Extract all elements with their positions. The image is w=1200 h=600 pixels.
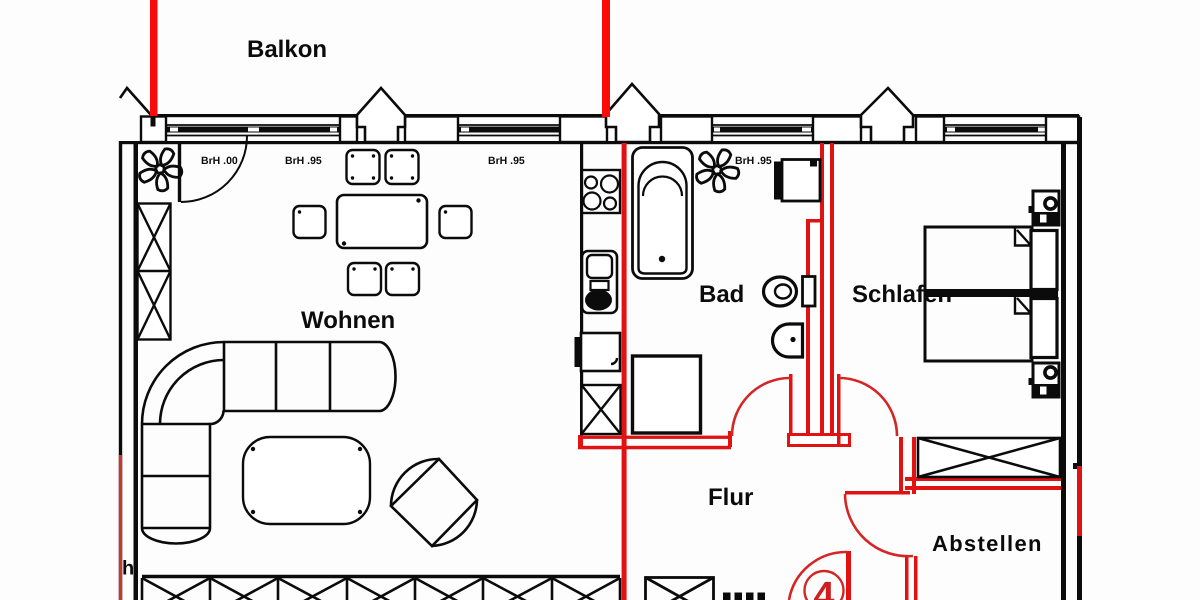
svg-text:Abstellen: Abstellen [932,531,1043,556]
svg-text:4: 4 [813,575,834,600]
svg-text:BrH .00: BrH .00 [201,155,238,167]
svg-text:BrH .95: BrH .95 [285,155,322,167]
svg-text:h: h [122,558,134,580]
svg-text:Bad: Bad [699,281,744,308]
svg-text:BrH .95: BrH .95 [735,155,772,167]
svg-text:Balkon: Balkon [247,36,327,63]
svg-text:Wohnen: Wohnen [301,307,395,334]
svg-text:BrH .95: BrH .95 [488,155,525,167]
svg-text:Flur: Flur [708,484,753,511]
